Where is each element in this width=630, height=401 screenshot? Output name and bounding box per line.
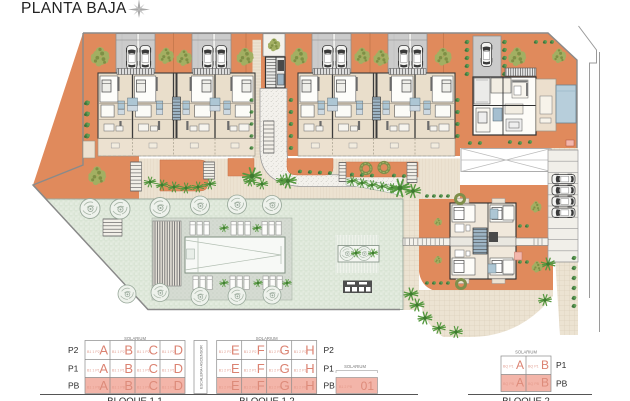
svg-text:H: H: [305, 378, 314, 393]
svg-text:P1: P1: [68, 364, 79, 374]
svg-text:P1: P1: [556, 360, 567, 370]
svg-text:G: G: [280, 378, 290, 393]
svg-text:E: E: [231, 378, 240, 393]
svg-text:SOLARIUM: SOLARIUM: [344, 364, 366, 369]
svg-text:B1 2 P1: B1 2 P1: [219, 369, 232, 373]
svg-text:A: A: [99, 378, 108, 393]
svg-text:B1 1 P1: B1 1 P1: [112, 369, 125, 373]
svg-text:B: B: [124, 378, 133, 393]
svg-text:F: F: [257, 378, 265, 393]
svg-text:B: B: [541, 358, 549, 372]
svg-text:D: D: [174, 378, 183, 393]
svg-text:B1 1 P2: B1 1 P2: [87, 350, 100, 354]
svg-text:A: A: [516, 358, 524, 372]
svg-text:BQ P1: BQ P1: [528, 365, 539, 369]
svg-text:ESCALERA+ASCENSOR: ESCALERA+ASCENSOR: [200, 345, 204, 389]
svg-text:B: B: [541, 376, 549, 390]
svg-text:D: D: [174, 343, 183, 358]
svg-text:B1 1 P2: B1 1 P2: [112, 350, 125, 354]
svg-text:PLANTA BAJA: PLANTA BAJA: [21, 0, 127, 17]
svg-text:B1 2 PB: B1 2 PB: [244, 386, 258, 390]
svg-text:B: B: [124, 361, 133, 376]
svg-text:SOLARIUM: SOLARIUM: [256, 336, 278, 341]
svg-text:A: A: [99, 343, 108, 358]
svg-text:B1 2 PB: B1 2 PB: [339, 385, 353, 389]
svg-text:A: A: [99, 361, 108, 376]
svg-text:A: A: [516, 376, 524, 390]
svg-text:D: D: [174, 361, 183, 376]
svg-text:PB: PB: [324, 381, 336, 391]
svg-text:C: C: [149, 343, 158, 358]
svg-text:BQ PB: BQ PB: [528, 382, 540, 386]
svg-text:H: H: [305, 361, 314, 376]
svg-text:PB: PB: [68, 381, 80, 391]
svg-text:G: G: [280, 343, 290, 358]
svg-text:B1 2 P2: B1 2 P2: [244, 350, 257, 354]
svg-text:H: H: [305, 343, 314, 358]
svg-text:F: F: [257, 343, 265, 358]
svg-text:E: E: [231, 361, 240, 376]
svg-text:P2: P2: [68, 345, 79, 355]
svg-text:G: G: [280, 361, 290, 376]
svg-text:SOLARIUM: SOLARIUM: [515, 350, 537, 355]
svg-text:P2: P2: [324, 345, 335, 355]
svg-text:B1 2 P1: B1 2 P1: [244, 369, 257, 373]
svg-text:B1 2 P2: B1 2 P2: [219, 350, 232, 354]
svg-text:F: F: [257, 361, 265, 376]
svg-text:01: 01: [361, 379, 375, 393]
svg-text:BLOQUE 1.2: BLOQUE 1.2: [239, 396, 294, 401]
svg-text:SOLARIUM: SOLARIUM: [124, 336, 146, 341]
svg-text:B1 1 P1: B1 1 P1: [87, 369, 100, 373]
svg-text:PB: PB: [556, 379, 568, 389]
svg-text:BQ PB: BQ PB: [503, 382, 515, 386]
svg-text:C: C: [149, 378, 158, 393]
svg-text:BQ P1: BQ P1: [503, 365, 514, 369]
svg-text:B: B: [124, 343, 133, 358]
svg-text:P1: P1: [324, 364, 335, 374]
svg-text:BLOQUE 1.1: BLOQUE 1.1: [107, 396, 162, 401]
svg-text:C: C: [149, 361, 158, 376]
svg-text:E: E: [231, 343, 240, 358]
svg-text:BLOQUE 2: BLOQUE 2: [502, 396, 550, 401]
